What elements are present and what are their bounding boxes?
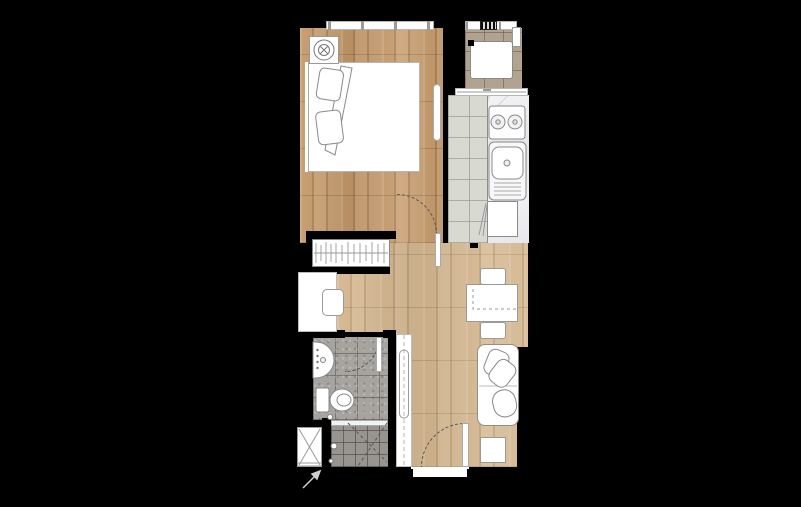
side-table	[480, 437, 506, 463]
bedroom-window	[326, 21, 434, 30]
bed-headboard	[305, 62, 309, 172]
balcony-sliding-door	[455, 88, 528, 96]
desk-chair	[322, 289, 344, 316]
bedside-table	[309, 36, 339, 64]
leader-arrow	[303, 471, 320, 488]
entry-door-leaf	[462, 423, 469, 467]
ac-unit	[433, 84, 441, 141]
dining-table	[466, 284, 518, 322]
service-shaft	[297, 427, 322, 467]
dining-chair-bottom	[480, 322, 506, 339]
shower-floor	[331, 420, 388, 467]
washing-machine-tap	[468, 40, 474, 46]
balcony-louver-vent	[480, 21, 497, 30]
wardrobe-top-wall	[306, 231, 396, 239]
bedroom-door-leaf	[435, 233, 441, 267]
sofa	[477, 344, 519, 426]
entry-threshold-tick-right	[467, 469, 471, 478]
washing-machine	[470, 41, 513, 79]
bathroom-right-wall	[388, 330, 396, 470]
bed	[305, 62, 420, 172]
entry-threshold-tick-left	[409, 469, 413, 478]
entry-threshold	[411, 467, 469, 477]
refrigerator	[487, 201, 518, 237]
balcony-ledge	[512, 27, 521, 47]
shower-curb	[331, 420, 388, 426]
floor-plan	[0, 0, 801, 507]
bathroom-door-leaf	[376, 337, 382, 372]
kitchen-dining-stub	[470, 243, 478, 248]
wardrobe	[312, 239, 390, 267]
hall-cabinet	[396, 334, 412, 467]
shower-side-wall	[322, 418, 331, 467]
dining-chair-top	[480, 268, 506, 285]
